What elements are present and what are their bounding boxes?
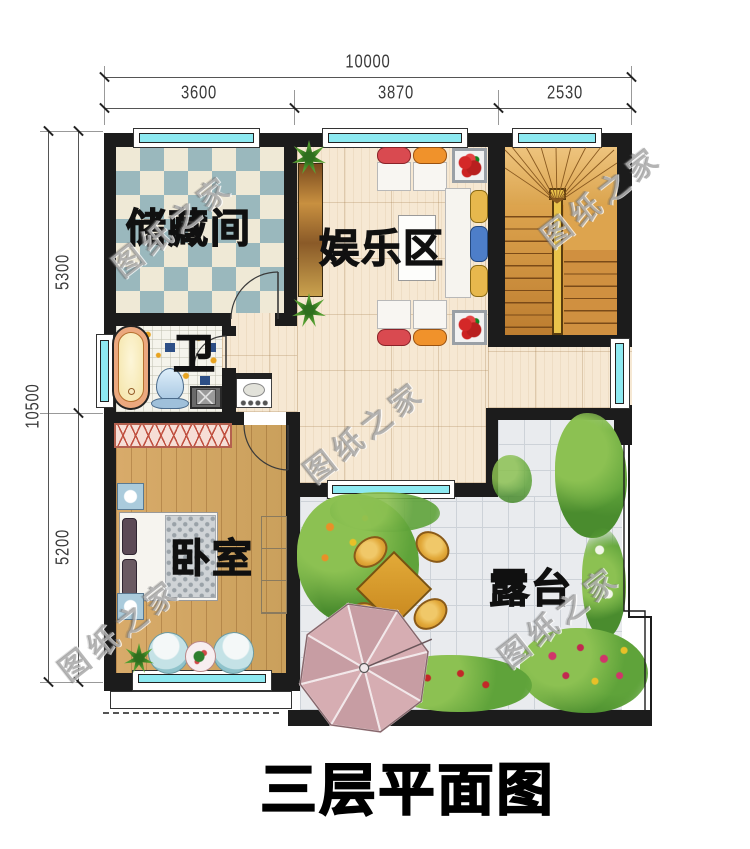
roofline-dashed	[103, 712, 279, 714]
lounge-seat	[377, 162, 411, 191]
dim-total-height: 10500	[23, 383, 44, 428]
wall-storage-bottom-stub	[275, 313, 297, 326]
bay-window-sill	[110, 691, 292, 709]
stove-burner	[243, 383, 265, 397]
flower-side-table	[452, 148, 487, 183]
lounge-seat-orange-cushion	[413, 329, 447, 346]
round-side-table	[185, 641, 216, 672]
dim-total-width: 10000	[345, 52, 390, 73]
stove-handle	[236, 373, 272, 379]
wardrobe	[261, 516, 287, 614]
window-storage-glass	[139, 133, 254, 143]
wall-stairs-left	[488, 133, 505, 347]
terrace-berries-red	[400, 660, 510, 705]
sofa-cushion-blue	[470, 226, 488, 262]
clothes-rack	[114, 423, 232, 448]
label-bathroom: 卫	[173, 321, 217, 382]
nightstand	[117, 483, 144, 510]
toilet-base	[151, 398, 189, 409]
dim-width-3: 2530	[547, 83, 583, 104]
dim-line-total-left	[48, 131, 49, 682]
label-entertainment-area: 娱乐区	[319, 216, 445, 274]
dim-height-1: 5300	[53, 254, 74, 290]
dim-line-segments-left	[78, 131, 79, 682]
staircase-flight-right	[564, 250, 617, 335]
dim-line-total-top	[104, 77, 632, 78]
window-stairs-glass	[518, 133, 596, 143]
label-bedroom: 卧室	[170, 526, 254, 584]
window-bathroom-glass	[100, 340, 109, 402]
window-corridor-right-glass	[615, 343, 624, 404]
bed-pillow	[122, 518, 137, 555]
terrace-shrubs	[492, 455, 532, 503]
ext-line	[40, 413, 103, 414]
lounge-seat-red-cushion	[377, 147, 411, 164]
dim-height-2: 5200	[53, 529, 74, 565]
lounge-seat-orange-cushion	[413, 147, 447, 164]
window-entertainment-glass	[328, 133, 462, 143]
window-bedroom-bay-glass	[138, 674, 266, 683]
floor-plan-page: 10000 3600 3870 2530 10500 5300 5200	[0, 0, 750, 849]
terrace-shrubs-top	[330, 492, 440, 532]
lounge-seat	[377, 300, 411, 329]
wall-bath-right-lower	[222, 368, 236, 412]
sofa-cushion-yellow	[470, 265, 488, 297]
flower-side-table	[452, 310, 487, 345]
lounge-seat	[413, 300, 447, 329]
shower-drain-plate	[196, 389, 216, 405]
stove-knobs	[240, 400, 268, 406]
sofa-cushion-yellow	[470, 190, 488, 223]
lounge-seat-red-cushion	[377, 329, 411, 346]
bathtub-drain	[128, 388, 135, 395]
sofa-body	[445, 188, 471, 298]
wall-bath-right-upper	[222, 326, 236, 336]
lounge-seat	[413, 162, 447, 191]
wall-terrace-top	[486, 408, 632, 420]
dim-line-segments-top	[104, 108, 632, 109]
dim-width-1: 3600	[181, 83, 217, 104]
drawing-title: 三层平面图	[261, 746, 556, 827]
dim-width-2: 3870	[378, 83, 414, 104]
